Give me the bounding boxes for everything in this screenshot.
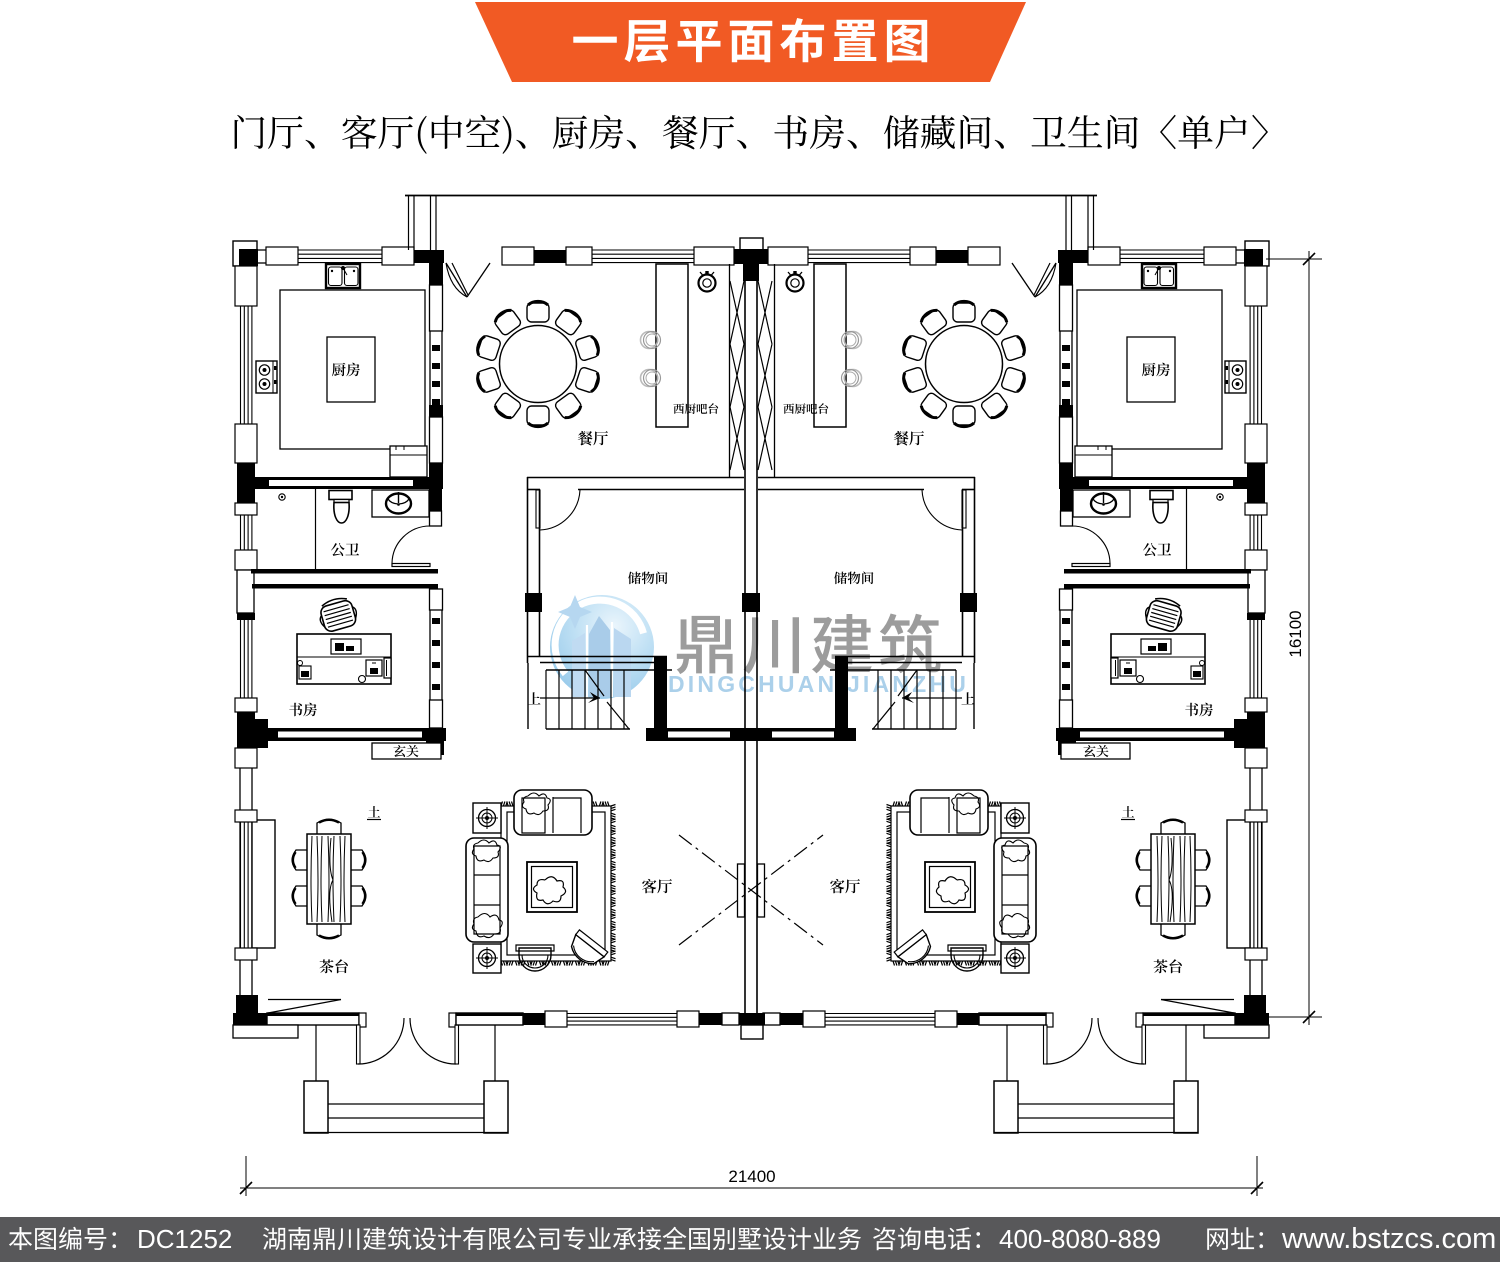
svg-text:DINGCHUAN JIANZHU: DINGCHUAN JIANZHU <box>668 671 969 697</box>
svg-text:400-8080-889: 400-8080-889 <box>999 1224 1161 1254</box>
svg-text:16100: 16100 <box>1286 610 1305 657</box>
svg-text:DC1252: DC1252 <box>137 1224 232 1254</box>
svg-text:21400: 21400 <box>728 1167 775 1186</box>
svg-text:www.bstzcs.com: www.bstzcs.com <box>1281 1223 1496 1255</box>
